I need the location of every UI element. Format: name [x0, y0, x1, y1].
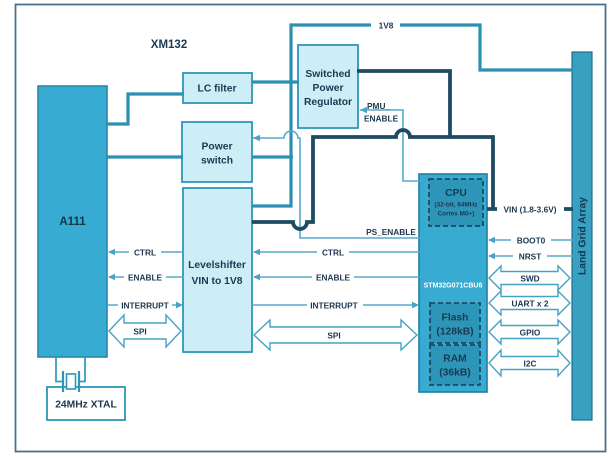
ps-enable-arrowhead — [253, 135, 260, 141]
enable-left-arrowhead — [108, 274, 115, 280]
interrupt-left-arrowhead — [176, 302, 183, 309]
ram-label: RAM — [443, 354, 466, 365]
nrst-label: NRST — [519, 252, 542, 262]
module-title: XM132 — [151, 39, 187, 51]
uart-label: UART x 2 — [512, 299, 549, 309]
cpu-detail-line1: (32-bit, 64MHz — [435, 202, 478, 209]
flash-size-label: (128kB) — [436, 327, 473, 338]
spr-label-line2: Power — [313, 83, 344, 94]
pmu-enable-label-line1: PMU_ — [367, 101, 390, 111]
diagram-canvas: XM132 A111 LC filter Power switch Switch… — [0, 0, 612, 459]
ctrl-right-label: CTRL — [322, 248, 344, 258]
spi-left-label: SPI — [133, 327, 146, 337]
land-grid-array-label: Land Grid Array — [578, 197, 589, 275]
enable-right-label: ENABLE — [316, 273, 351, 283]
gpio-label: GPIO — [520, 328, 541, 338]
interrupt-left-label: INTERRUPT — [121, 301, 168, 311]
levelshifter-label-line2: VIN to 1V8 — [192, 276, 243, 287]
ram-size-label: (36kB) — [439, 368, 470, 379]
lc-filter-label: LC filter — [198, 84, 237, 95]
nrst-arrowhead — [488, 253, 495, 259]
v1v8-net-label: 1V8 — [379, 21, 394, 31]
interrupt-right-arrowhead — [412, 302, 419, 309]
ctrl-left-arrowhead — [108, 249, 115, 255]
boot0-label: BOOT0 — [517, 236, 546, 246]
pmu-enable-label-line2: ENABLE — [364, 114, 399, 124]
boot0-arrowhead — [488, 237, 495, 243]
spi-right-label: SPI — [327, 331, 340, 341]
enable-left-label: ENABLE — [128, 273, 163, 283]
xtal-label: 24MHz XTAL — [55, 400, 117, 411]
pmu-enable-arrowhead — [360, 107, 367, 113]
wire-a111-to-lc-filter — [107, 94, 184, 124]
enable-right-arrowhead — [253, 274, 260, 280]
interrupt-right-label: INTERRUPT — [310, 301, 357, 311]
mcu-part-number: STM32G071CBU6 — [424, 283, 483, 290]
spr-label-line1: Switched — [305, 69, 350, 80]
ctrl-left-label: CTRL — [134, 248, 156, 258]
power-switch-label-line2: switch — [201, 156, 233, 167]
a111-label: A111 — [59, 216, 86, 228]
i2c-label: I2C — [524, 359, 537, 369]
power-switch-label-line1: Power — [202, 142, 233, 153]
ram-block — [430, 345, 480, 385]
cpu-label: CPU — [445, 188, 467, 199]
spr-label-line3: Regulator — [304, 97, 352, 108]
vin-net-label: VIN (1.8-3.6V) — [503, 205, 556, 215]
levelshifter-label-line1: Levelshifter — [188, 260, 246, 271]
flash-label: Flash — [442, 313, 469, 324]
ctrl-right-arrowhead — [253, 249, 260, 255]
crystal-icon — [67, 374, 76, 389]
xm132-block-diagram: XM132 A111 LC filter Power switch Switch… — [0, 0, 612, 459]
ps-enable-label: PS_ENABLE — [366, 227, 416, 237]
cpu-detail-line2: Cortex M0+) — [438, 211, 475, 218]
swd-label: SWD — [520, 274, 539, 284]
